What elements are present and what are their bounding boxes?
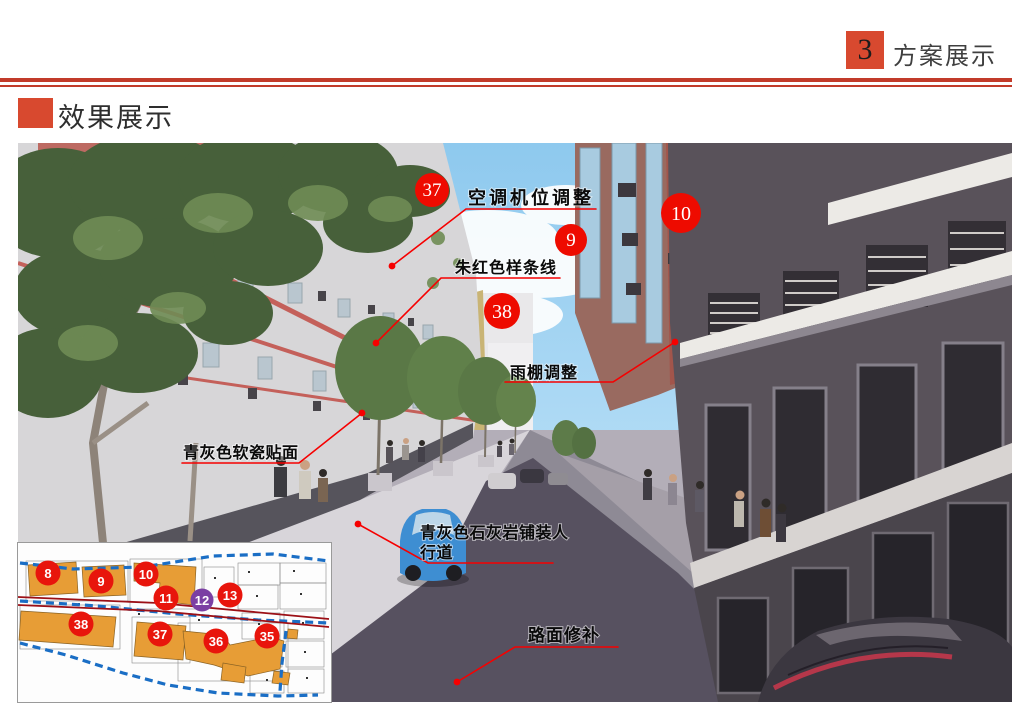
subsection-title: 效果展示 xyxy=(58,96,174,135)
header-rule-thick xyxy=(0,78,1012,82)
label-pavement-line1: 青灰色石灰岩铺装人 xyxy=(420,523,569,542)
svg-text:13: 13 xyxy=(223,588,237,603)
label-facade-tile: 青灰色软瓷贴面 xyxy=(183,443,299,462)
label-pavement-line2: 行道 xyxy=(419,543,453,562)
svg-text:9: 9 xyxy=(566,230,576,251)
header-rule-thin xyxy=(0,85,1012,87)
subsection-bullet-square xyxy=(18,98,53,128)
map-marker-13: 13 xyxy=(218,583,243,608)
map-marker-36: 36 xyxy=(204,629,229,654)
label-aircon: 空调机位调整 xyxy=(468,187,594,208)
svg-text:38: 38 xyxy=(74,617,88,632)
inset-map-svg: 8 9 10 11 12 13 38 37 36 35 xyxy=(18,543,331,702)
svg-text:10: 10 xyxy=(139,567,153,582)
marker-10: 10 xyxy=(661,193,701,233)
label-road-repair: 路面修补 xyxy=(528,625,600,645)
label-vermilion-spline: 朱红色样条线 xyxy=(455,258,557,277)
label-canopy: 雨棚调整 xyxy=(510,363,578,382)
map-marker-8: 8 xyxy=(36,561,61,586)
map-marker-11: 11 xyxy=(154,586,179,611)
right-building xyxy=(668,143,1012,702)
svg-text:37: 37 xyxy=(423,180,442,201)
svg-text:38: 38 xyxy=(492,301,512,323)
map-marker-38: 38 xyxy=(69,612,94,637)
svg-text:12: 12 xyxy=(195,593,209,608)
section-number-badge: 3 xyxy=(846,31,884,69)
inset-map: 8 9 10 11 12 13 38 37 36 35 xyxy=(18,543,331,702)
map-marker-35: 35 xyxy=(255,624,280,649)
svg-text:36: 36 xyxy=(209,634,223,649)
map-marker-37: 37 xyxy=(148,622,173,647)
map-marker-9: 9 xyxy=(89,569,114,594)
marker-9: 9 xyxy=(555,224,587,256)
svg-text:9: 9 xyxy=(97,574,104,589)
section-title: 方案展示 xyxy=(893,36,997,71)
svg-text:11: 11 xyxy=(159,591,173,606)
marker-37: 37 xyxy=(415,173,449,207)
map-marker-10: 10 xyxy=(134,562,159,587)
marker-38: 38 xyxy=(484,293,520,329)
map-marker-12: 12 xyxy=(191,589,214,612)
slide: 3 方案展示 效果展示 xyxy=(0,0,1030,712)
svg-text:37: 37 xyxy=(153,627,167,642)
svg-text:8: 8 xyxy=(44,566,51,581)
svg-text:10: 10 xyxy=(671,203,691,225)
svg-text:35: 35 xyxy=(260,629,274,644)
